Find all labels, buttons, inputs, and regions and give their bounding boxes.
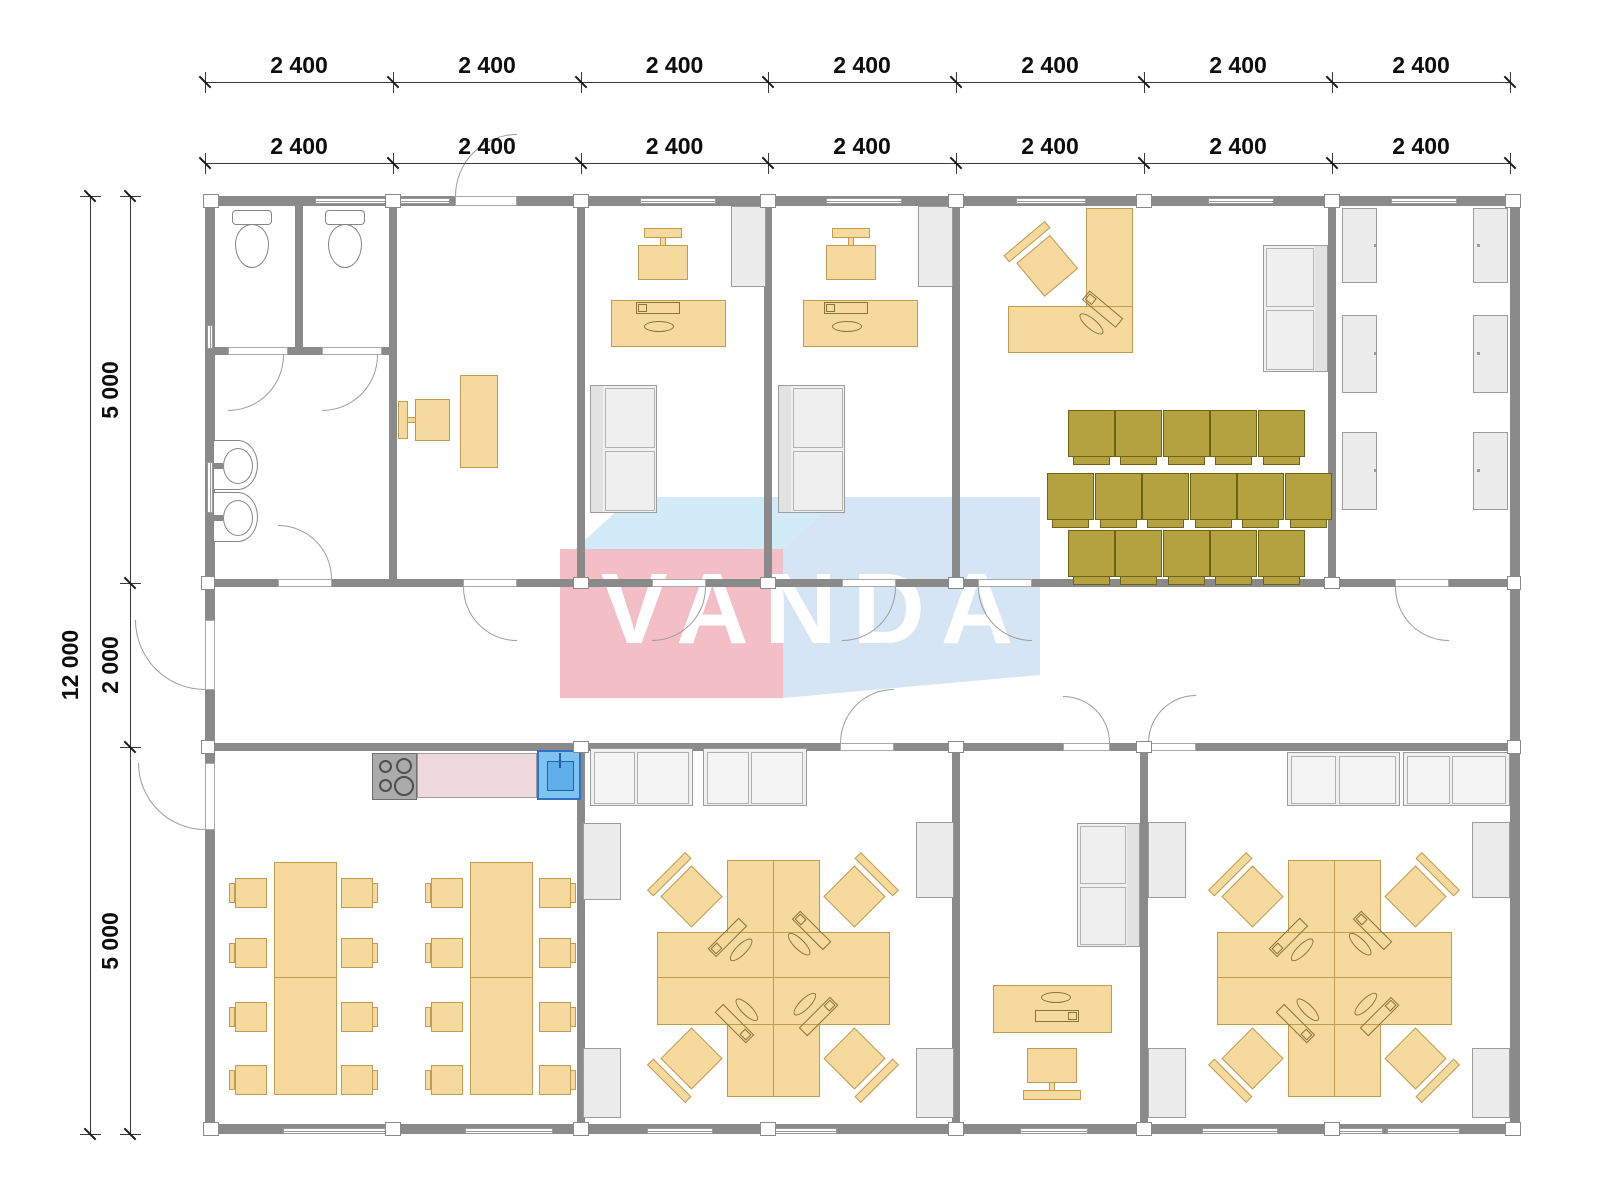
burner-icon (379, 779, 392, 792)
wall-joint (948, 194, 964, 208)
door (322, 347, 382, 355)
office-chair (1027, 1048, 1077, 1083)
chair-backrest (229, 1070, 235, 1090)
dimension-line (90, 196, 91, 1134)
handle-dot (1374, 244, 1377, 247)
dining-chair (431, 878, 463, 908)
swivel-chair (1207, 851, 1290, 934)
chair-backrest (1263, 576, 1300, 585)
dimension-label: 2 400 (442, 52, 532, 78)
dimension-label: 2 400 (1376, 133, 1466, 159)
audience-chair (1258, 530, 1305, 577)
wall-joint (1507, 576, 1521, 590)
cabinet-door (1407, 756, 1450, 804)
dimension-label: 2 000 (97, 605, 123, 725)
wall-joint (573, 741, 589, 753)
window-icon (767, 1128, 837, 1134)
window-icon (1202, 1128, 1278, 1134)
dimension-line (205, 163, 1511, 164)
cabinet (916, 1048, 954, 1118)
sofa-seats (1264, 246, 1315, 371)
cabinet-door (594, 752, 635, 804)
audience-chair (1068, 410, 1115, 457)
swivel-chair (816, 851, 899, 934)
window-icon (826, 198, 902, 204)
burner-icon (396, 758, 412, 774)
cabinet (1472, 1048, 1510, 1118)
wall (1328, 206, 1336, 579)
wall-joint (948, 741, 964, 753)
door (228, 347, 288, 355)
wall-joint (760, 577, 776, 589)
audience-chair (1237, 473, 1284, 520)
door-swing-arc (840, 689, 894, 743)
desk-divider (773, 860, 774, 1097)
cabinet (1342, 315, 1377, 393)
cabinet-door (1452, 756, 1506, 804)
door (278, 579, 332, 587)
window-icon (1387, 1128, 1460, 1134)
chair-backrest (1263, 456, 1300, 465)
swivel-chair (1377, 851, 1460, 934)
desk (460, 375, 498, 468)
wall-joint (760, 1122, 776, 1136)
cabinet (1148, 1048, 1186, 1118)
sofa (590, 385, 657, 513)
toilet-icon (325, 210, 365, 225)
sofa-cushion (1080, 887, 1126, 945)
wall-joint (1324, 1122, 1340, 1136)
wall-joint (201, 740, 215, 754)
dining-chair (341, 878, 373, 908)
audience-chair (1285, 473, 1332, 520)
window-icon (647, 1128, 713, 1134)
wall-joint (760, 194, 776, 208)
desk-divider (1334, 860, 1335, 1097)
chair-backrest (1168, 576, 1205, 585)
chair-backrest (425, 943, 431, 963)
dining-chair (235, 878, 267, 908)
dining-chair (431, 1002, 463, 1032)
wall-joint (1505, 194, 1521, 208)
wall-joint (1324, 577, 1340, 589)
wall-joint (385, 194, 401, 208)
chair-backrest (425, 1070, 431, 1090)
window-icon (1016, 198, 1086, 204)
burner-icon (394, 776, 414, 796)
swivel-chair (646, 1020, 729, 1103)
wall-joint (1136, 194, 1152, 208)
dining-table (470, 862, 533, 1095)
desk-divider (470, 977, 533, 978)
door-swing-arc (135, 620, 205, 690)
window-icon (207, 325, 213, 349)
sofa-cushion (793, 451, 843, 511)
door-swing-arc (463, 587, 517, 641)
chair-backrest (372, 883, 378, 903)
wall (295, 206, 303, 355)
dimension-label: 2 400 (630, 133, 720, 159)
dimension-label: 2 400 (1376, 52, 1466, 78)
door (840, 743, 894, 751)
cabinet (1342, 432, 1377, 510)
audience-chair (1142, 473, 1189, 520)
cabinet-door (1291, 756, 1336, 804)
sofa-cushion (605, 451, 655, 511)
chair-backrest (1215, 576, 1252, 585)
door-swing-arc (228, 355, 284, 411)
wall (577, 206, 585, 579)
computer-icon (636, 302, 690, 334)
chair-backrest (1215, 456, 1252, 465)
dimension-label: 2 400 (1005, 133, 1095, 159)
chair-backrest (229, 883, 235, 903)
burner-icon (379, 760, 392, 773)
wall (1510, 196, 1520, 1134)
door-swing-arc (322, 355, 378, 411)
audience-chair (1115, 530, 1162, 577)
audience-chair (1068, 530, 1115, 577)
chair-backrest (229, 943, 235, 963)
chair-backrest (425, 883, 431, 903)
sofa (1263, 245, 1328, 372)
handle-dot (1477, 352, 1480, 355)
wardrobe-cabinet (1403, 752, 1510, 806)
dimension-label: 12 000 (57, 605, 83, 725)
kitchen-sink-icon (537, 750, 581, 800)
sofa-cushion (605, 388, 655, 448)
cabinet (583, 1048, 621, 1118)
cabinet (583, 823, 621, 900)
door (1395, 579, 1449, 587)
chair-backrest (570, 883, 576, 903)
audience-chair (1258, 410, 1305, 457)
desk-divider (657, 977, 890, 978)
wall-joint (948, 1122, 964, 1136)
wall-joint (201, 576, 215, 590)
dimension-label: 2 400 (1193, 52, 1283, 78)
dimension-label: 2 400 (1005, 52, 1095, 78)
chair-backrest (372, 943, 378, 963)
wall-joint (573, 194, 589, 208)
wall-joint (573, 577, 589, 589)
dimension-label: 2 400 (817, 133, 907, 159)
toilet-bowl (328, 224, 362, 268)
handle-dot (1374, 352, 1377, 355)
door (978, 579, 1032, 587)
door (1063, 743, 1110, 751)
dimension-label: 2 400 (254, 133, 344, 159)
wall-joint (203, 1122, 219, 1136)
floor-plan-canvas: VANDA 2 4002 4002 4002 4002 4002 4002 40… (0, 0, 1600, 1200)
wall (952, 206, 960, 579)
wall-joint (385, 1122, 401, 1136)
sofa-cushion (793, 388, 843, 448)
cabinet (1342, 208, 1377, 283)
desk-divider (1217, 977, 1452, 978)
cabinet-door (637, 752, 689, 804)
sofa-seats (791, 386, 844, 512)
door-swing-arc (652, 587, 706, 641)
chair-backrest (1100, 519, 1137, 528)
door-swing-arc (278, 525, 332, 579)
chair-backrest (1195, 519, 1232, 528)
dimension-label: 2 400 (442, 133, 532, 159)
window-icon (1208, 198, 1274, 204)
office-chair (638, 245, 688, 280)
wardrobe-cabinet (703, 748, 807, 806)
dining-chair (539, 878, 571, 908)
basin-oval (223, 448, 253, 484)
swivel-chair (1207, 1020, 1290, 1103)
sofa-cushion (1266, 248, 1314, 308)
chair-backrest (1290, 519, 1327, 528)
door-swing-arc (978, 587, 1032, 641)
wardrobe-cabinet (590, 748, 693, 806)
dimension-line (130, 196, 131, 1134)
sofa-seats (603, 386, 656, 512)
toilet-bowl (235, 224, 269, 268)
audience-chair (1163, 410, 1210, 457)
wall-joint (1505, 1122, 1521, 1136)
wall-joint (1324, 194, 1340, 208)
cabinet-door (707, 752, 749, 804)
stove-icon (372, 753, 417, 800)
keyboard-icon (644, 321, 674, 332)
chair-backrest (570, 1070, 576, 1090)
faucet-icon (214, 515, 223, 521)
dining-chair (539, 938, 571, 968)
chair-backrest (1168, 456, 1205, 465)
office-chair (415, 399, 450, 441)
handle-dot (1374, 469, 1377, 472)
chair-backrest (1073, 576, 1110, 585)
dimension-label: 5 000 (97, 330, 123, 450)
chair-backrest (1120, 456, 1157, 465)
dining-chair (235, 1002, 267, 1032)
chair-backrest (570, 1007, 576, 1027)
wall (389, 206, 397, 579)
chair-backrest (372, 1007, 378, 1027)
dining-chair (431, 1065, 463, 1095)
office-chair (826, 245, 876, 280)
sofa-back (591, 386, 603, 512)
door-swing-arc (1395, 587, 1449, 641)
audience-chair (1210, 530, 1257, 577)
wall (205, 1124, 1520, 1134)
wall-joint (1507, 740, 1521, 754)
dimension-label: 5 000 (97, 881, 123, 1001)
cabinet (1148, 822, 1186, 898)
audience-chair (1115, 410, 1162, 457)
chair-backrest (425, 1007, 431, 1027)
wall-joint (203, 194, 219, 208)
sofa-back (1127, 824, 1139, 946)
dining-chair (341, 938, 373, 968)
door (652, 579, 706, 587)
sofa-back (779, 386, 791, 512)
door-swing-arc (1148, 695, 1196, 743)
kitchen-counter (417, 753, 537, 798)
wall-joint (1136, 1122, 1152, 1136)
swivel-chair (1377, 1020, 1460, 1103)
wardrobe-cabinet (1287, 752, 1400, 806)
chair-backrest (372, 1070, 378, 1090)
dimension-label: 2 400 (254, 52, 344, 78)
door (455, 196, 517, 206)
window-icon (465, 1128, 553, 1134)
wall-joint (1136, 741, 1152, 753)
washbasin-icon (213, 440, 258, 490)
keyboard-icon (1041, 992, 1071, 1003)
dimension-line (205, 82, 1511, 83)
window-icon (1020, 1128, 1088, 1134)
dining-table (274, 862, 337, 1095)
audience-chair (1163, 530, 1210, 577)
sofa (1077, 823, 1140, 947)
dimension-label: 2 400 (630, 52, 720, 78)
audience-chair (1210, 410, 1257, 457)
wall (1140, 751, 1148, 1124)
chair-backrest (1073, 456, 1110, 465)
dimension-label: 2 400 (1193, 133, 1283, 159)
audience-chair (1095, 473, 1142, 520)
chair-backrest (1052, 519, 1089, 528)
audience-chair (1047, 473, 1094, 520)
sofa-seats (1078, 824, 1127, 946)
window-icon (640, 198, 716, 204)
cabinet (1472, 822, 1510, 898)
chair-backrest (1023, 1090, 1081, 1100)
desk-divider (274, 977, 337, 978)
sofa-back (1315, 246, 1327, 371)
door (1148, 743, 1196, 751)
door-swing-arc (138, 763, 205, 830)
chair-backrest (229, 1007, 235, 1027)
keyboard-icon (832, 321, 862, 332)
cpu-icon (638, 304, 647, 312)
cabinet (916, 822, 954, 898)
chair-backrest (1242, 519, 1279, 528)
chair-backrest (1147, 519, 1184, 528)
dining-chair (539, 1065, 571, 1095)
swivel-chair (1003, 220, 1086, 303)
dining-chair (341, 1002, 373, 1032)
handle-dot (1477, 244, 1480, 247)
sofa-cushion (1266, 310, 1314, 370)
window-icon (283, 1128, 397, 1134)
faucet-icon (214, 463, 223, 469)
dining-chair (235, 1065, 267, 1095)
dining-chair (539, 1002, 571, 1032)
chair-backrest (570, 943, 576, 963)
door (463, 579, 517, 587)
door (842, 579, 896, 587)
cabinet (918, 206, 953, 287)
washbasin-icon (213, 492, 258, 542)
door (205, 763, 215, 830)
wall-joint (948, 577, 964, 589)
dining-chair (235, 938, 267, 968)
door-swing-arc (842, 587, 896, 641)
window-icon (1391, 198, 1457, 204)
computer-icon (824, 302, 878, 334)
sofa-cushion (1080, 826, 1126, 884)
handle-dot (1477, 469, 1480, 472)
audience-chair (1190, 473, 1237, 520)
cpu-icon (826, 304, 835, 312)
toilet-icon (232, 210, 272, 225)
window-icon (315, 198, 450, 204)
door (205, 620, 215, 690)
dining-chair (341, 1065, 373, 1095)
floor-plan-elements: 2 4002 4002 4002 4002 4002 4002 4002 400… (0, 0, 1600, 1200)
swivel-chair (816, 1020, 899, 1103)
sofa (778, 385, 845, 513)
wall-joint (573, 1122, 589, 1136)
dimension-label: 2 400 (817, 52, 907, 78)
cabinet (731, 206, 766, 287)
basin-oval (223, 500, 253, 536)
faucet-icon (559, 753, 561, 768)
computer-icon (1025, 990, 1079, 1022)
chair-backrest (1120, 576, 1157, 585)
cabinet-door (751, 752, 803, 804)
swivel-chair (646, 851, 729, 934)
cpu-icon (1068, 1012, 1077, 1020)
cabinet-door (1339, 756, 1396, 804)
door-swing-arc (1063, 696, 1110, 743)
dining-chair (431, 938, 463, 968)
